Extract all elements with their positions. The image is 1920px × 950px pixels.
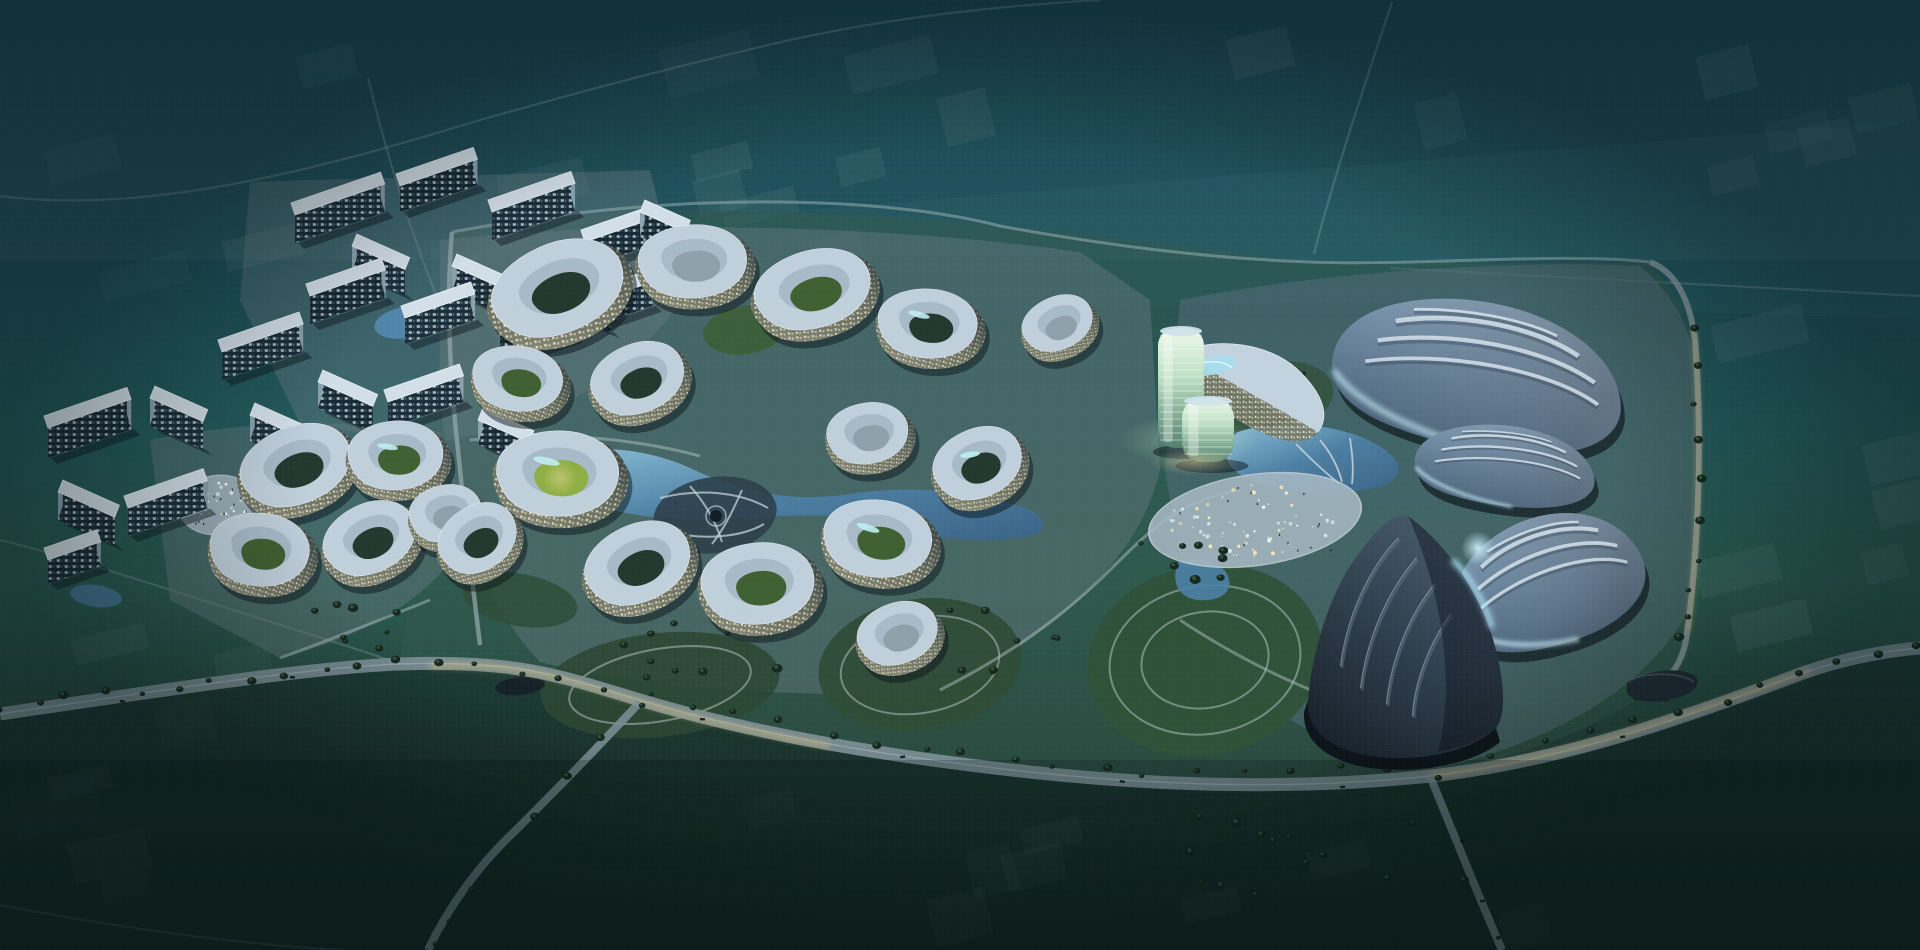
rendering-canvas <box>0 0 1920 950</box>
aerial-masterplan-rendering <box>0 0 1920 950</box>
texture-vignette <box>0 0 1920 950</box>
